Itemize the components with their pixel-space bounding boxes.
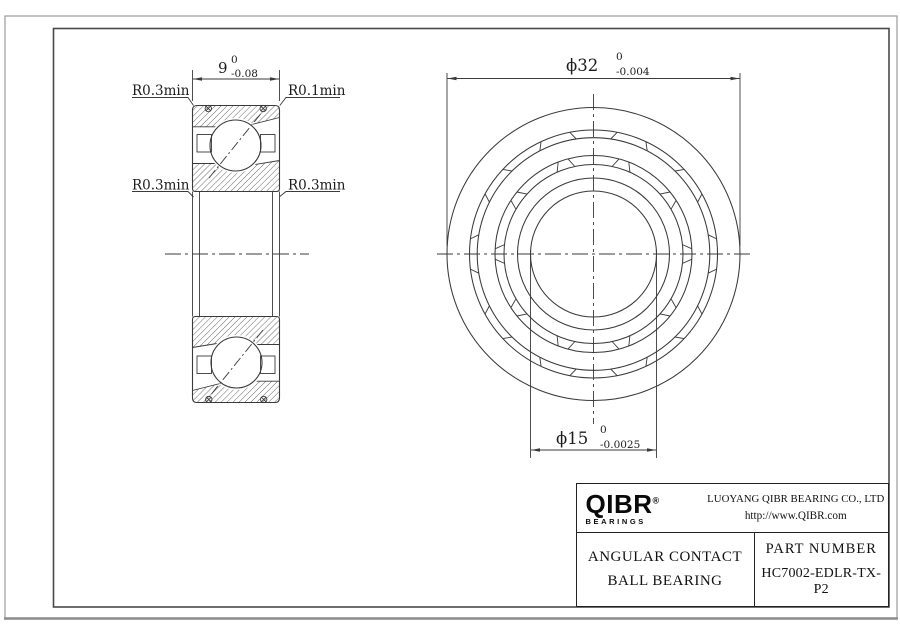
radius-label-top-left: R0.3min: [132, 83, 190, 99]
company-logo: QIBR® BEARINGS: [577, 491, 704, 526]
company-website: http://www.QIBR.com: [704, 508, 889, 525]
product-type-cell: ANGULAR CONTACT BALL BEARING: [577, 533, 755, 606]
width-dimension-value: 9: [218, 59, 228, 77]
part-number-value: HC7002-EDLR-TX-P2: [755, 566, 889, 598]
od-dimension-tol-lower: -0.004: [616, 66, 650, 78]
drawing-page: 9 0 -0.08 R0.3min R0.1min R0.3min R0.3mi…: [0, 0, 900, 636]
bearing-section-bottom: [193, 317, 280, 403]
width-dimension-tol-lower: -0.08: [231, 68, 258, 80]
width-dimension: 9 0 -0.08: [193, 54, 280, 101]
bore-dimension-tol-lower: -0.0025: [600, 439, 640, 451]
product-type-line1: ANGULAR CONTACT: [577, 549, 754, 566]
logo-subtext: BEARINGS: [586, 518, 704, 526]
logo-text: QIBR®: [586, 491, 704, 517]
registered-mark: ®: [653, 495, 660, 505]
od-dimension-value: ϕ32: [566, 56, 598, 75]
title-block-body: ANGULAR CONTACT BALL BEARING PART NUMBER…: [577, 533, 889, 606]
bore-dimension-value: ϕ15: [556, 429, 588, 448]
cross-section-view: 9 0 -0.08 R0.3min R0.1min R0.3min R0.3mi…: [132, 54, 346, 403]
company-info: LUOYANG QIBR BEARING CO., LTD http://www…: [704, 491, 889, 525]
bearing-section-top: [193, 105, 280, 191]
radius-label-top-right: R0.1min: [288, 83, 346, 99]
company-name: LUOYANG QIBR BEARING CO., LTD: [704, 491, 889, 508]
od-dimension-tol-upper: 0: [616, 51, 623, 63]
title-block: QIBR® BEARINGS LUOYANG QIBR BEARING CO.,…: [576, 483, 890, 607]
front-view: ϕ32 0 -0.004 ϕ15 0 -0.0025: [437, 51, 751, 458]
bore-dimension: ϕ15 0 -0.0025: [531, 250, 657, 458]
product-type-line2: BALL BEARING: [577, 573, 754, 590]
part-number-cell: PART NUMBER HC7002-EDLR-TX-P2: [755, 533, 889, 606]
bore-dimension-tol-upper: 0: [600, 424, 607, 436]
width-dimension-tol-upper: 0: [231, 54, 238, 66]
part-number-label: PART NUMBER: [755, 541, 889, 558]
title-block-header: QIBR® BEARINGS LUOYANG QIBR BEARING CO.,…: [577, 484, 889, 533]
